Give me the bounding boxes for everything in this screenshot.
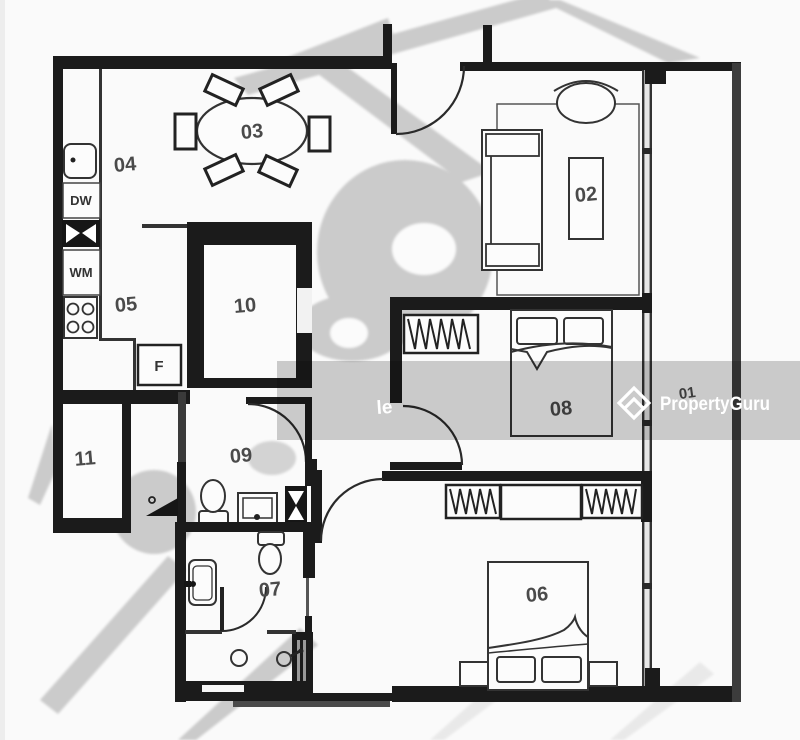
svg-text:06: 06 — [525, 583, 549, 607]
svg-text:05: 05 — [114, 293, 138, 317]
svg-text:PropertyGuru: PropertyGuru — [660, 394, 770, 415]
svg-text:11: 11 — [74, 447, 97, 471]
svg-text:04: 04 — [113, 153, 138, 177]
svg-text:02: 02 — [574, 183, 598, 207]
svg-text:03: 03 — [240, 120, 264, 144]
svg-text:F: F — [154, 358, 163, 375]
svg-text:WM: WM — [69, 265, 92, 280]
svg-text:DW: DW — [70, 193, 92, 208]
svg-text:07: 07 — [258, 578, 282, 602]
svg-text:le: le — [376, 397, 393, 419]
svg-text:10: 10 — [233, 294, 257, 318]
svg-text:09: 09 — [229, 444, 253, 468]
